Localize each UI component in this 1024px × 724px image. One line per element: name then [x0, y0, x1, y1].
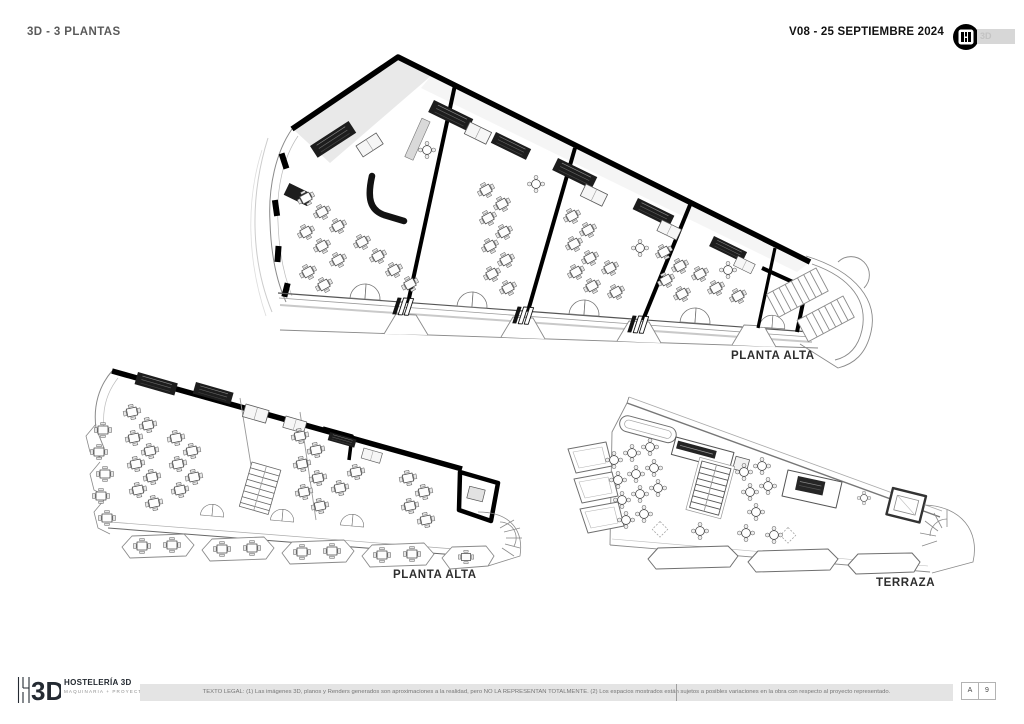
plan-terraza: [568, 397, 974, 574]
footer-brand: HOSTELERÍA 3D MAQUINARIA + PROYECTOS: [64, 678, 151, 694]
hosteleria3d-logo-icon: 3D: [17, 674, 61, 706]
page-title: 3D - 3 PLANTAS: [27, 26, 121, 38]
version-date: V08 - 25 SEPTIEMBRE 2024: [789, 26, 944, 38]
svg-text:3D: 3D: [31, 676, 61, 706]
brand-tagline: MAQUINARIA + PROYECTOS: [64, 689, 151, 694]
h3d-circle-logo-icon: [952, 23, 980, 51]
legal-bar-divider: [676, 684, 677, 701]
header-logo-band: 3D: [977, 29, 1015, 44]
plan-label-planta-alta-upper: PLANTA ALTA: [731, 350, 815, 362]
plan-label-planta-alta-lower: PLANTA ALTA: [393, 569, 477, 581]
legal-text: TEXTO LEGAL: (1) Las imágenes 3D, planos…: [140, 684, 953, 701]
plan-label-terraza: TERRAZA: [876, 577, 935, 589]
plan-planta-alta-upper: [251, 57, 873, 368]
legal-bar: TEXTO LEGAL: (1) Las imágenes 3D, planos…: [140, 684, 953, 701]
plan-planta-alta-lower: [86, 371, 522, 569]
brand-name: HOSTELERÍA 3D: [64, 678, 151, 687]
sheet-series-box: A: [961, 682, 979, 700]
sheet-number-box: 9: [978, 682, 996, 700]
floorplan-canvas: [0, 0, 1024, 724]
